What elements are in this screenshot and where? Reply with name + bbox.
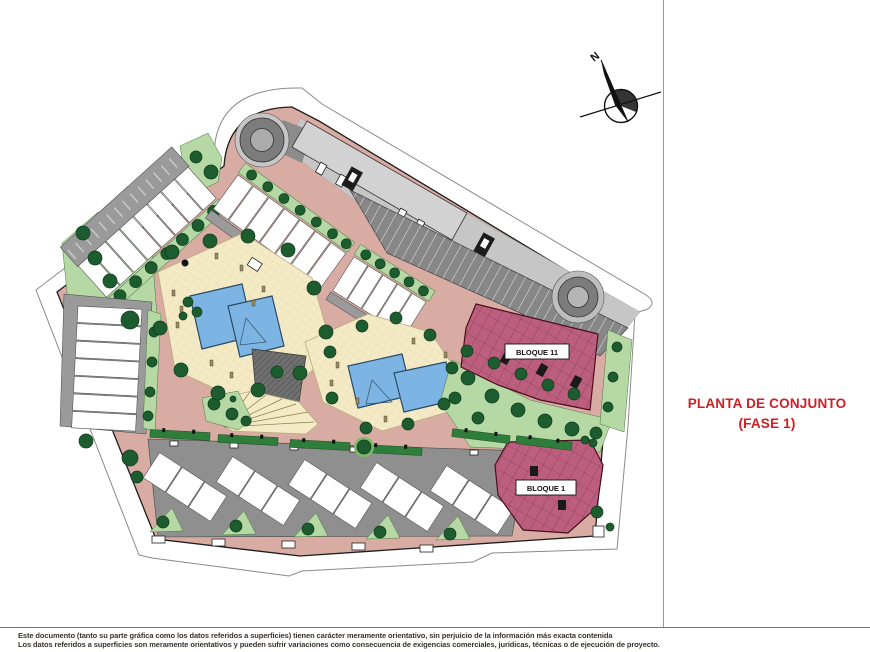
title-panel: PLANTA DE CONJUNTO (FASE 1) xyxy=(664,0,870,627)
bloque-1-label: BLOQUE 1 xyxy=(527,484,565,493)
bottom-housing-band xyxy=(143,439,527,540)
roundabout-top xyxy=(235,113,289,167)
compass-north-label: N xyxy=(588,50,602,64)
page-title-line2: (FASE 1) xyxy=(664,414,870,434)
disclaimer-line1: Este documento (tanto su parte gráfica c… xyxy=(18,631,866,640)
disclaimer-bar: Este documento (tanto su parte gráfica c… xyxy=(0,627,870,652)
page-title: PLANTA DE CONJUNTO (FASE 1) xyxy=(664,394,870,433)
site-plan-drawing: BLOQUE 11 BLOQUE 1 xyxy=(0,0,663,627)
page: BLOQUE 11 BLOQUE 1 xyxy=(0,0,870,652)
site-plan: BLOQUE 11 BLOQUE 1 xyxy=(0,0,663,627)
disclaimer-line2: Los datos referidos a superficies son me… xyxy=(18,640,866,649)
bloque-11-label: BLOQUE 11 xyxy=(516,348,558,357)
roundabout-right xyxy=(552,271,604,323)
page-title-line1: PLANTA DE CONJUNTO xyxy=(664,394,870,414)
compass-icon: N xyxy=(580,50,661,123)
left-apartment-block xyxy=(60,294,161,434)
